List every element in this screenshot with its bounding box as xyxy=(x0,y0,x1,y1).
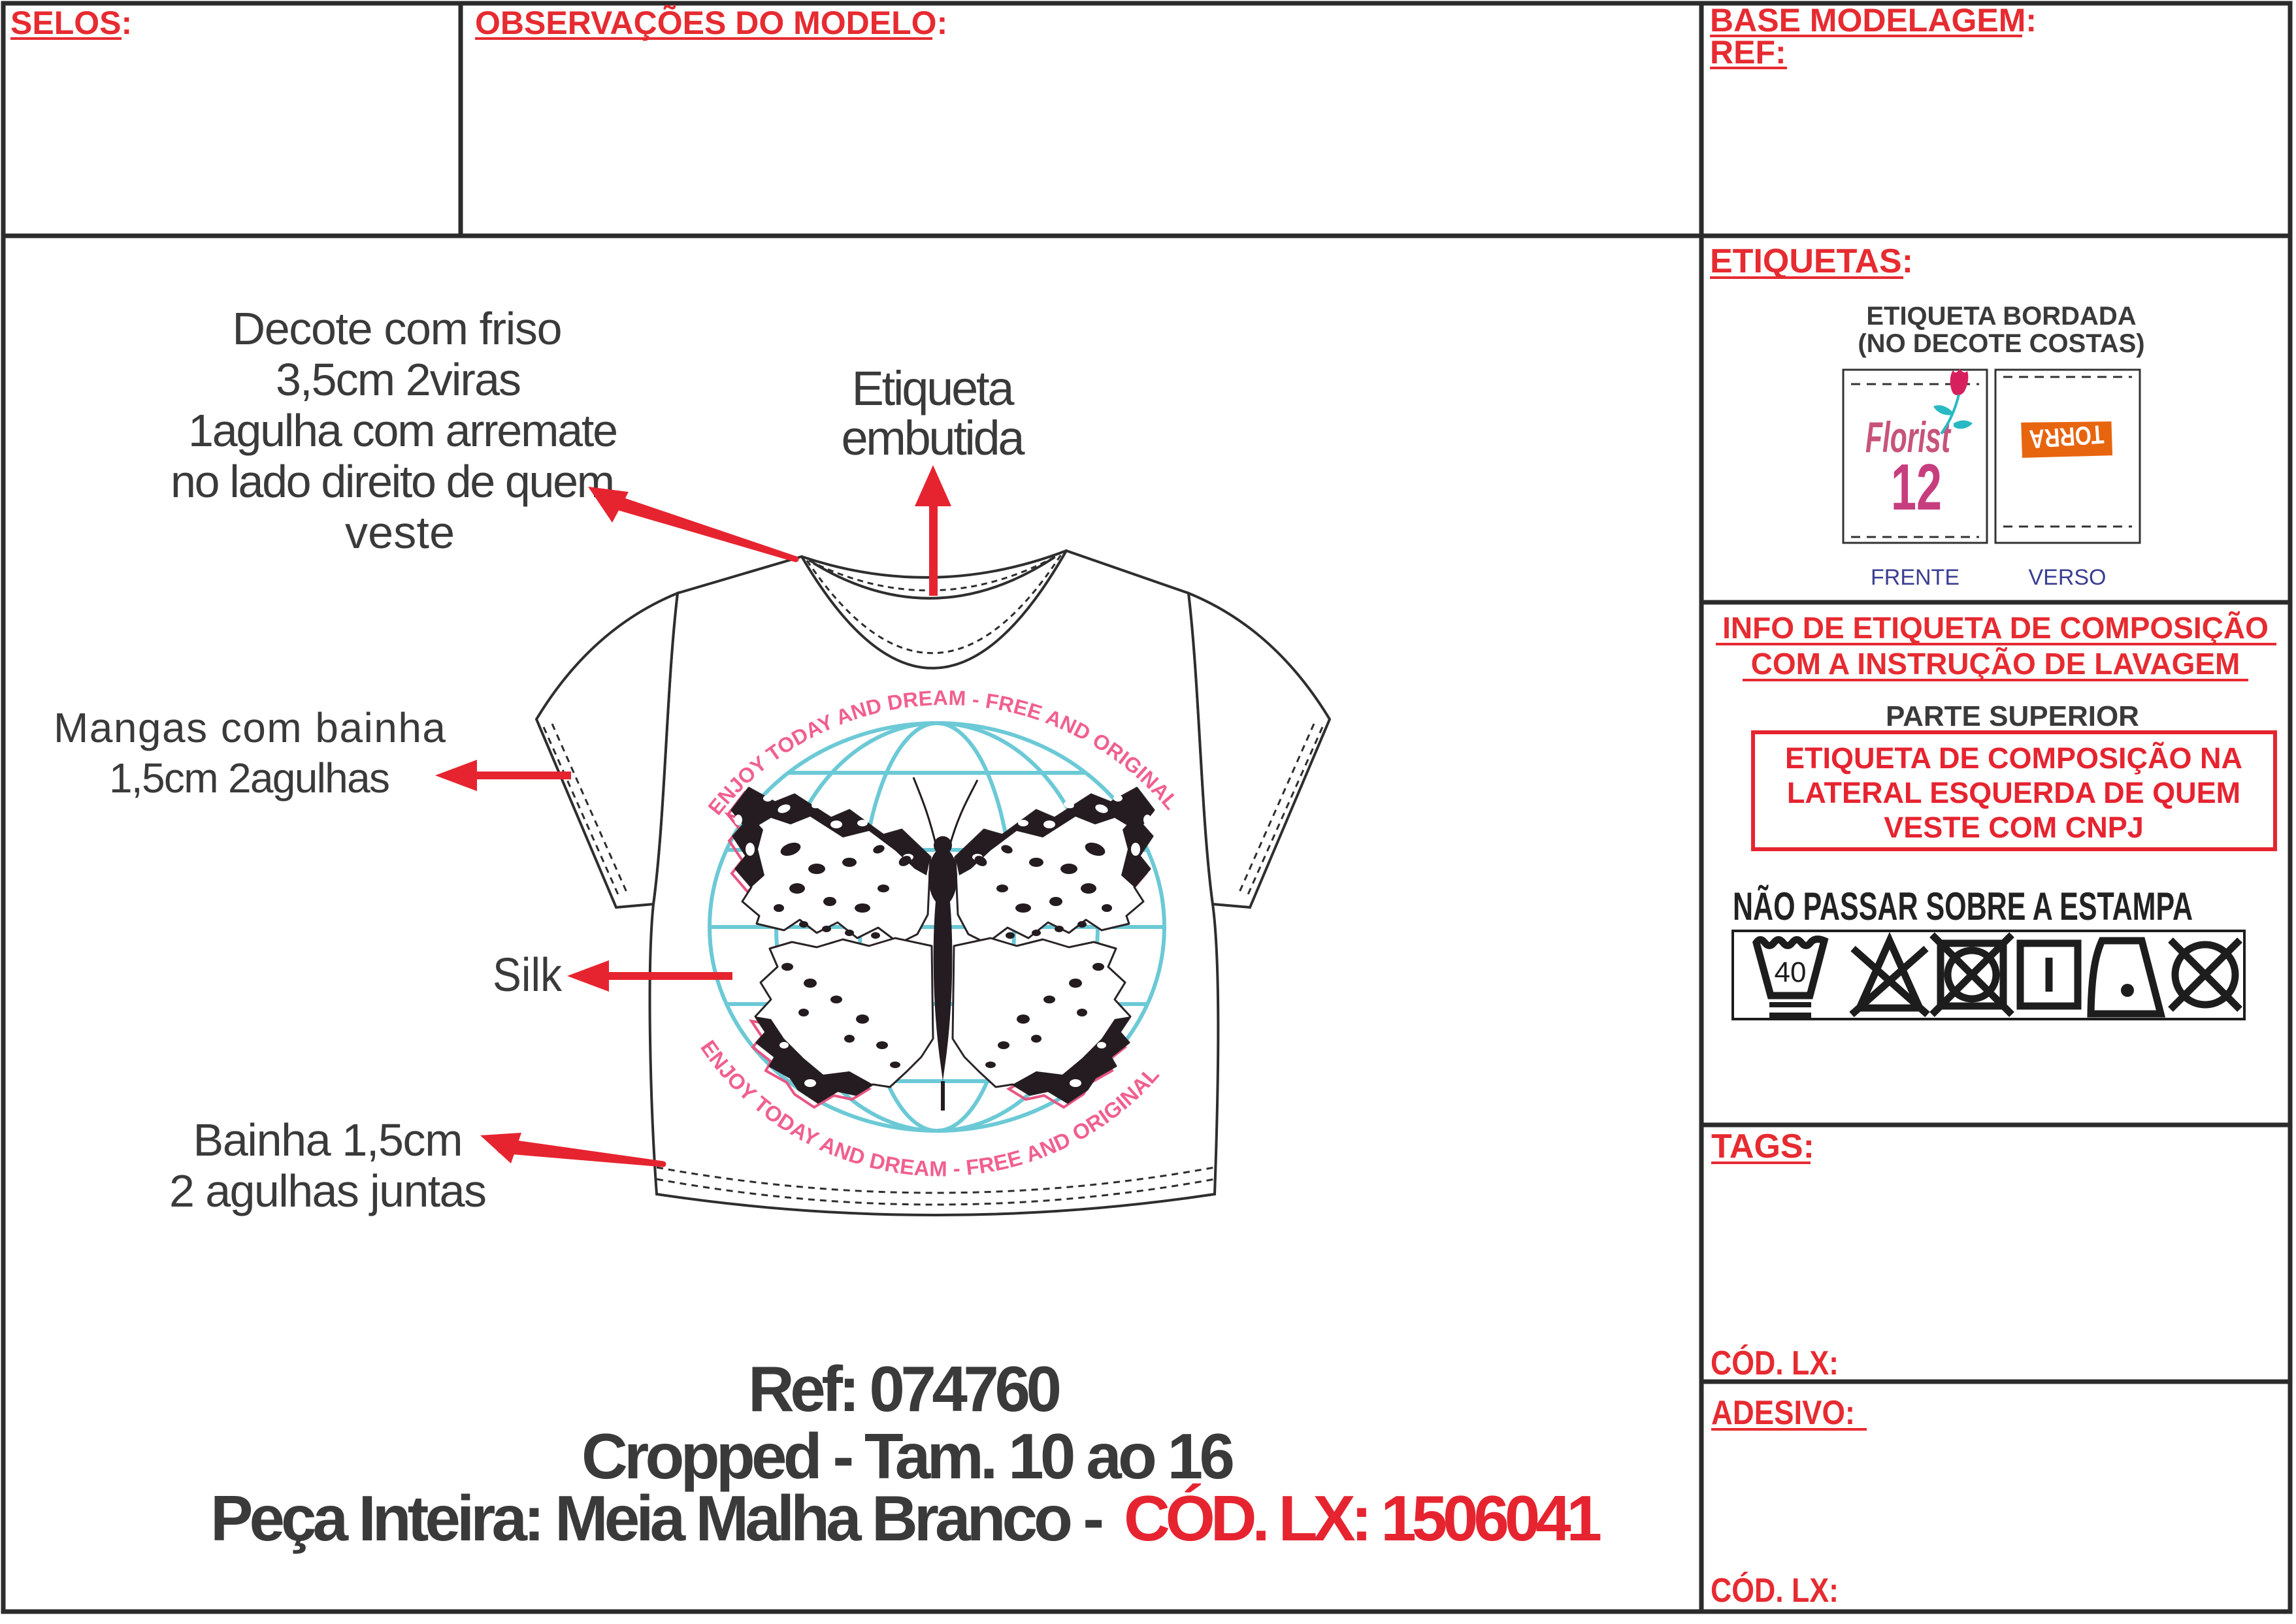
svg-text:CÓD. LX: 1506041: CÓD. LX: 1506041 xyxy=(1124,1482,1602,1554)
svg-text:1,5cm 2agulhas: 1,5cm 2agulhas xyxy=(109,755,390,802)
svg-text:TAGS:: TAGS: xyxy=(1711,1128,1814,1165)
svg-text:(NO DECOTE COSTAS): (NO DECOTE COSTAS) xyxy=(1858,329,2144,358)
svg-text:Bainha 1,5cm: Bainha 1,5cm xyxy=(193,1114,463,1165)
svg-text:3,5cm 2viras: 3,5cm 2viras xyxy=(276,354,521,405)
svg-text:ETIQUETA DE COMPOSIÇÃO NA: ETIQUETA DE COMPOSIÇÃO NA xyxy=(1785,741,2242,775)
svg-text:Silk: Silk xyxy=(493,949,563,1001)
svg-text:LATERAL ESQUERDA DE QUEM: LATERAL ESQUERDA DE QUEM xyxy=(1787,776,2240,809)
svg-text:VESTE COM CNPJ: VESTE COM CNPJ xyxy=(1884,811,2144,844)
svg-text:VERSO: VERSO xyxy=(2028,565,2106,590)
svg-text:INFO DE ETIQUETA DE COMPOSIÇÃO: INFO DE ETIQUETA DE COMPOSIÇÃO xyxy=(1722,611,2269,645)
svg-text:veste: veste xyxy=(345,507,455,558)
svg-text:no lado direito de quem: no lado direito de quem xyxy=(171,456,615,507)
svg-text:OBSERVAÇÕES DO MODELO:: OBSERVAÇÕES DO MODELO: xyxy=(475,4,947,41)
svg-text:CÓD. LX:: CÓD. LX: xyxy=(1711,1344,1839,1382)
svg-text:Peça Inteira: Meia Malha Branc: Peça Inteira: Meia Malha Branco - xyxy=(210,1482,1104,1554)
svg-text:REF:: REF: xyxy=(1710,34,1786,71)
svg-text:FRENTE: FRENTE xyxy=(1871,565,1960,590)
svg-text:12: 12 xyxy=(1891,451,1942,524)
svg-text:1agulha com arremate: 1agulha com arremate xyxy=(188,405,618,456)
svg-text:NÃO PASSAR SOBRE A ESTAMPA: NÃO PASSAR SOBRE A ESTAMPA xyxy=(1733,885,2193,928)
svg-text:2 agulhas juntas: 2 agulhas juntas xyxy=(169,1165,487,1216)
svg-text:embutida: embutida xyxy=(842,411,1026,465)
svg-text:Decote com friso: Decote com friso xyxy=(233,303,563,354)
svg-text:40: 40 xyxy=(1775,956,1807,988)
svg-text:SELOS:: SELOS: xyxy=(10,5,132,41)
svg-text:ETIQUETA BORDADA: ETIQUETA BORDADA xyxy=(1866,302,2136,331)
svg-text:Mangas com bainha: Mangas com bainha xyxy=(54,704,446,751)
svg-text:COM A INSTRUÇÃO DE LAVAGEM: COM A INSTRUÇÃO DE LAVAGEM xyxy=(1751,647,2240,681)
svg-text:TORRA: TORRA xyxy=(2028,419,2105,453)
svg-text:Ref: 074760: Ref: 074760 xyxy=(748,1353,1062,1425)
svg-text:BASE MODELAGEM:: BASE MODELAGEM: xyxy=(1710,2,2037,39)
svg-text:Etiqueta: Etiqueta xyxy=(852,361,1015,415)
svg-text:Cropped - Tam. 10 ao 16: Cropped - Tam. 10 ao 16 xyxy=(582,1420,1235,1492)
svg-text:ETIQUETAS:: ETIQUETAS: xyxy=(1710,242,1913,280)
svg-text:PARTE SUPERIOR: PARTE SUPERIOR xyxy=(1886,700,2139,732)
svg-text:ADESIVO:: ADESIVO: xyxy=(1711,1394,1855,1432)
svg-text:CÓD. LX:: CÓD. LX: xyxy=(1711,1572,1839,1610)
